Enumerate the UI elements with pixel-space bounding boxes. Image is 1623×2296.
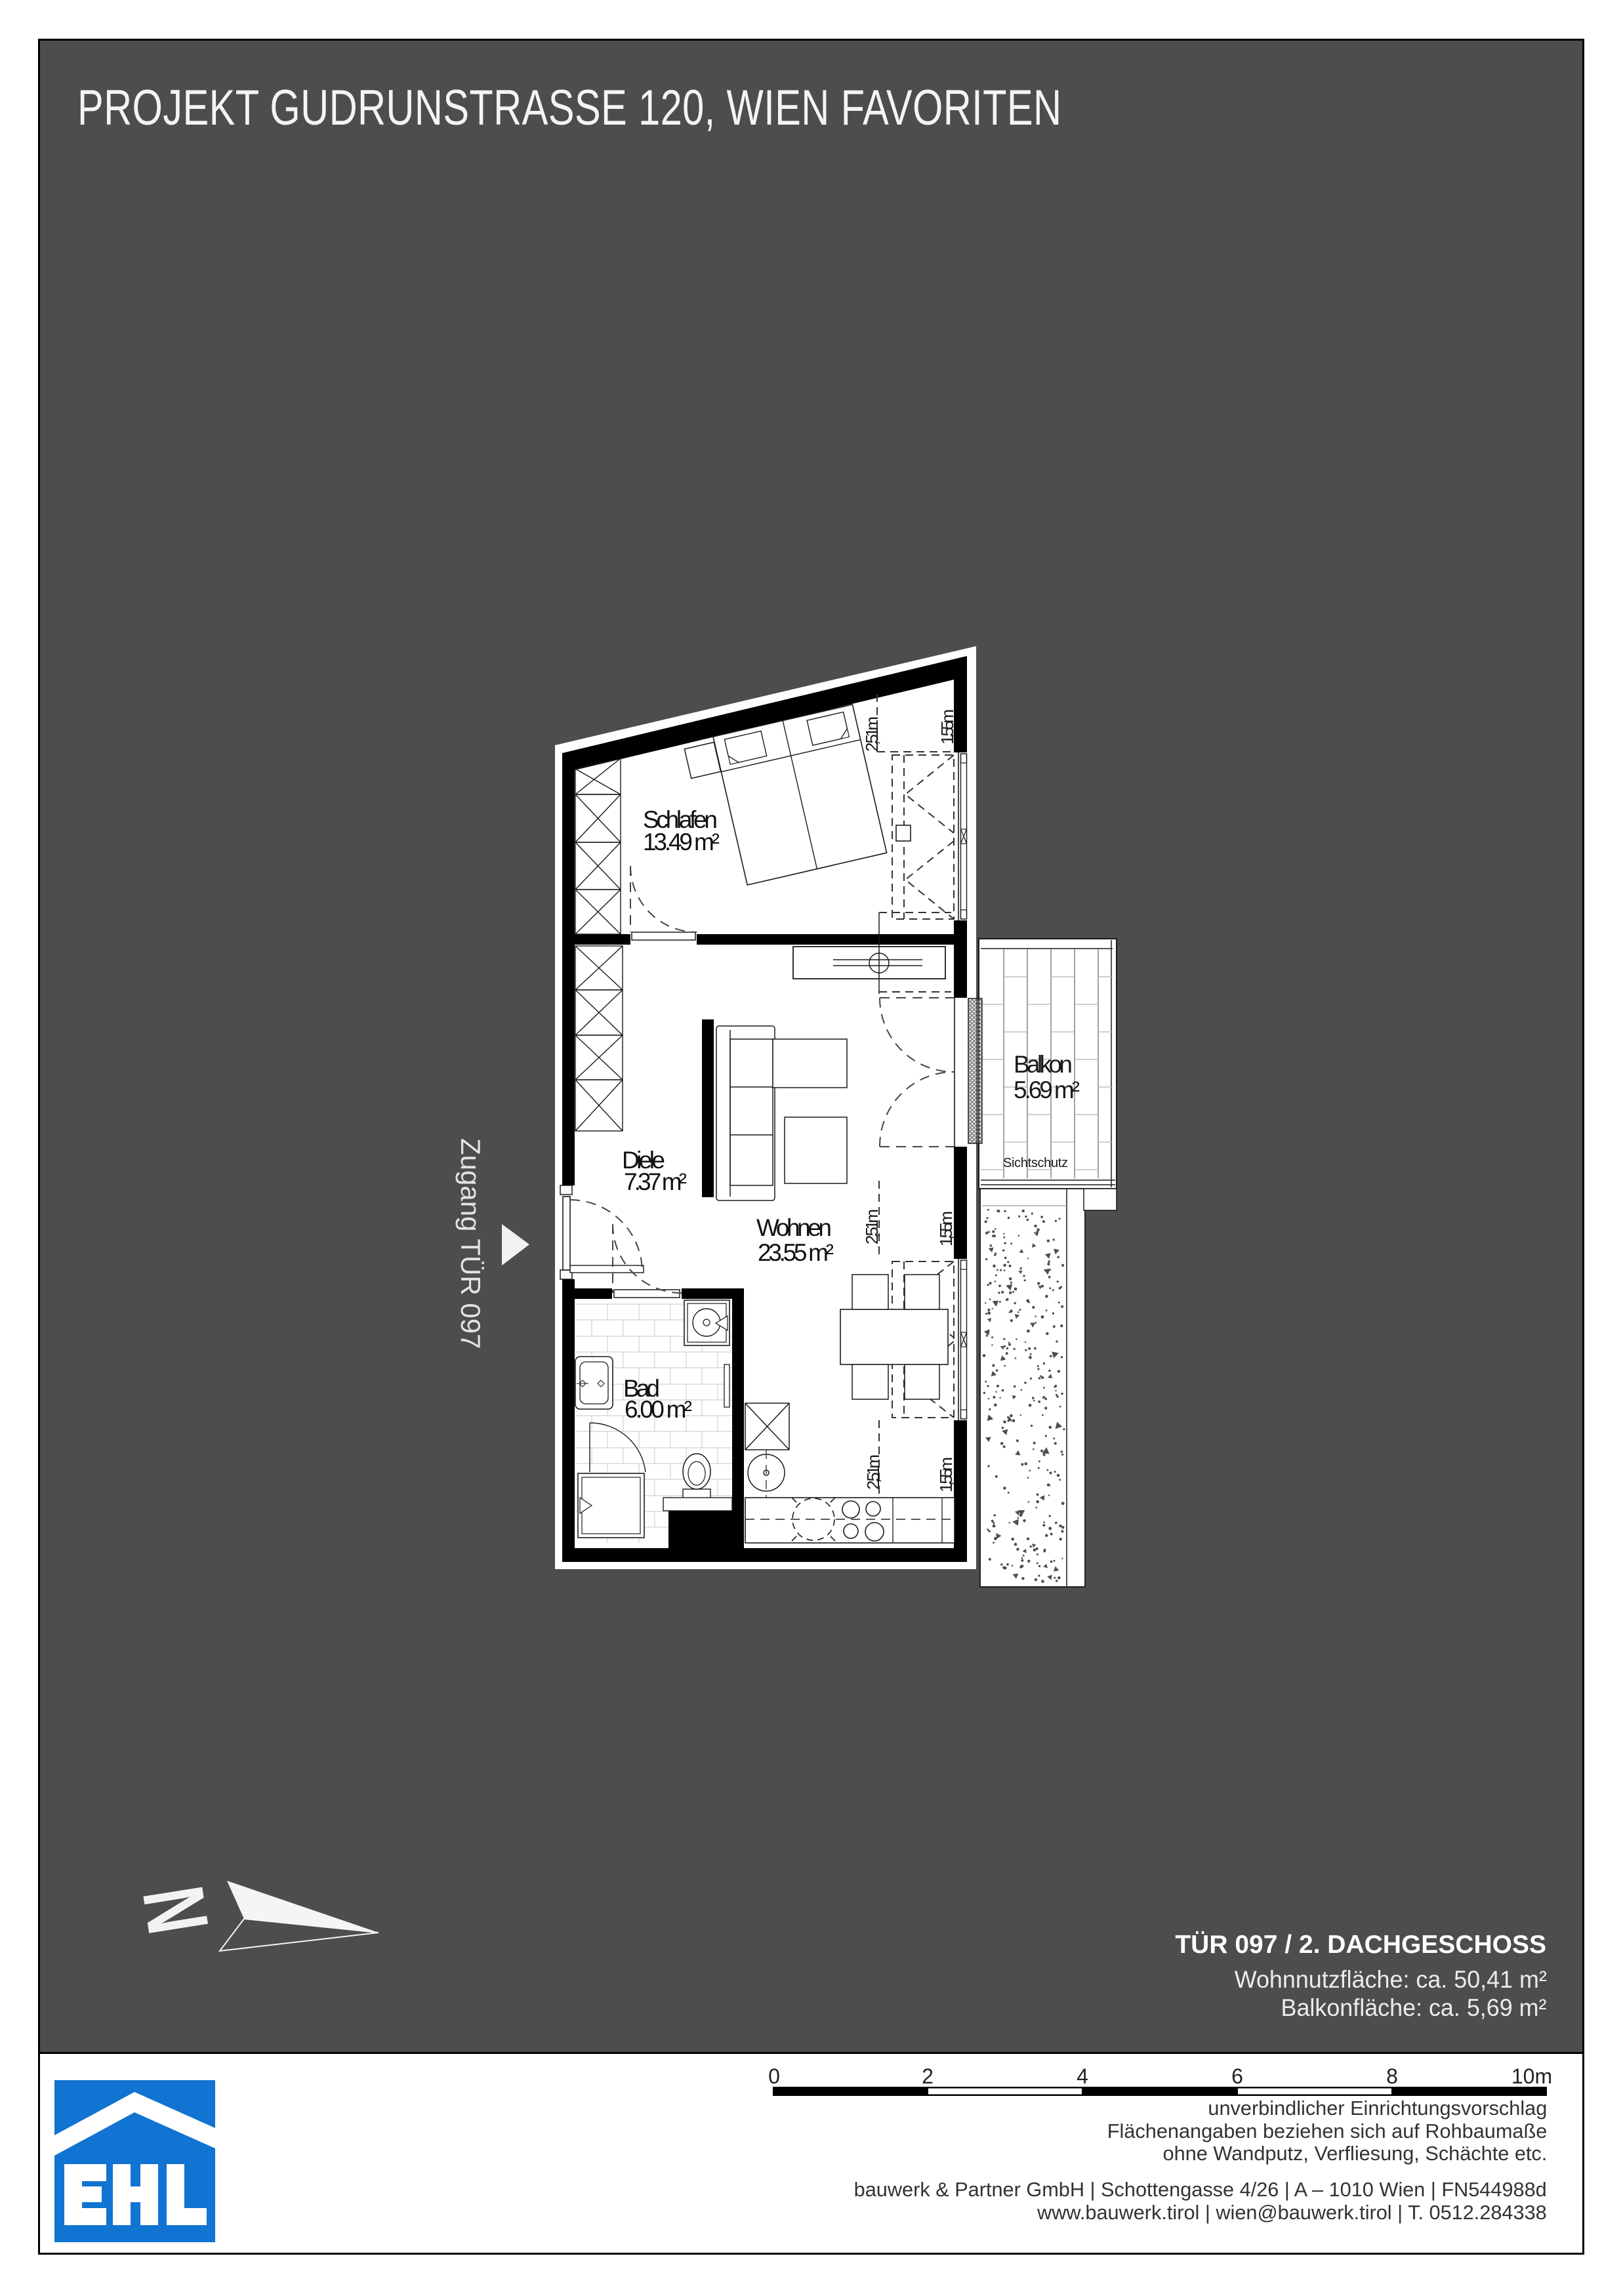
svg-text:2: 2 [922, 2064, 934, 2088]
svg-text:10m: 10m [1511, 2064, 1552, 2088]
svg-text:5.69 m²: 5.69 m² [1014, 1076, 1080, 1103]
svg-text:2,51m: 2,51m [862, 1209, 882, 1244]
svg-text:2,51m: 2,51m [863, 1454, 883, 1490]
svg-text:13.49 m²: 13.49 m² [643, 829, 720, 855]
svg-text:6.00 m²: 6.00 m² [625, 1396, 692, 1423]
svg-text:1,55m: 1,55m [936, 1211, 956, 1246]
svg-text:2,51m: 2,51m [862, 716, 882, 752]
svg-text:7.37 m²: 7.37 m² [624, 1168, 687, 1195]
svg-text:Zugang TÜR 097: Zugang TÜR 097 [455, 1138, 486, 1349]
svg-text:Balkon: Balkon [1014, 1051, 1073, 1078]
svg-text:8: 8 [1386, 2064, 1398, 2088]
svg-text:0: 0 [768, 2064, 780, 2088]
svg-text:4: 4 [1077, 2064, 1088, 2088]
svg-text:Sichtschutz: Sichtschutz [1003, 1156, 1068, 1170]
svg-text:Wohnen: Wohnen [756, 1214, 832, 1241]
svg-text:1,55m: 1,55m [936, 1457, 956, 1492]
svg-text:1,55m: 1,55m [937, 709, 957, 745]
svg-text:N: N [125, 1880, 227, 1940]
svg-text:23.55 m²: 23.55 m² [758, 1239, 834, 1266]
svg-text:6: 6 [1231, 2064, 1243, 2088]
